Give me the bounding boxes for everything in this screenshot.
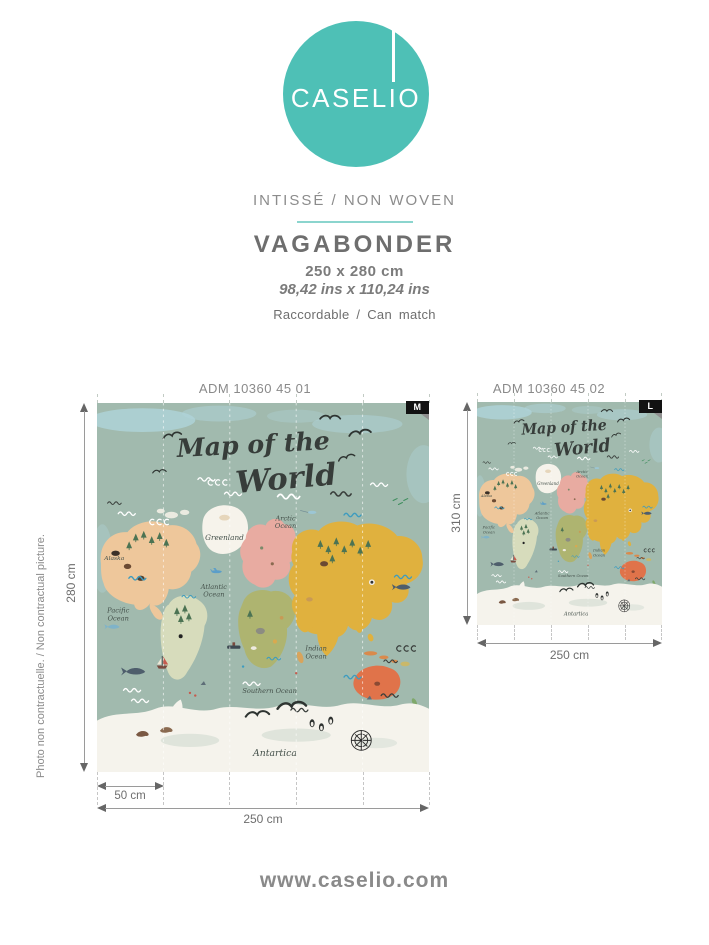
map-preview-l — [477, 402, 662, 625]
panel-guide — [429, 772, 430, 805]
logo-wordmark: CASELIO — [283, 83, 429, 114]
panel-guide — [514, 625, 515, 640]
product-sheet-page: CASELIO INTISSÉ / NON WOVEN VAGABONDER 2… — [0, 0, 709, 945]
variant-ref-01: ADM 10360 45 01 — [89, 381, 421, 396]
height-label-310: 310 cm — [449, 473, 463, 553]
height-arrow-310 — [463, 402, 472, 625]
panel-tick — [296, 394, 297, 403]
logo-mark-line — [392, 29, 395, 82]
panel-tick — [551, 393, 552, 402]
panel-guide — [551, 625, 552, 640]
panel-tick — [588, 393, 589, 402]
panel-tick — [477, 393, 478, 402]
variant-ref-02: ADM 10360 45 02 — [459, 381, 639, 396]
website-label: www.caselio.com — [0, 869, 709, 893]
badge-fold — [421, 414, 429, 420]
panel-tick — [163, 394, 164, 403]
height-arrow-280 — [80, 403, 89, 772]
product-name: VAGABONDER — [0, 231, 709, 259]
map-preview-m — [97, 403, 429, 772]
panel-guide — [625, 625, 626, 640]
match-label: Raccordable / Can match — [0, 307, 709, 322]
size-cm-label: 250 x 280 cm — [0, 263, 709, 280]
panel-guide — [588, 625, 589, 640]
panel-guide — [661, 625, 662, 640]
panel-tick — [514, 393, 515, 402]
size-inches-label: 98,42 ins x 110,24 ins — [0, 281, 709, 298]
width-arrow-250-l — [477, 639, 662, 648]
panel-tick — [429, 394, 430, 403]
panel-label-50: 50 cm — [90, 790, 170, 802]
panel-tick — [97, 394, 98, 403]
panel-tick — [229, 394, 230, 403]
width-label-250-l: 250 cm — [477, 648, 662, 662]
panel-guide — [296, 772, 297, 805]
size-badge-l: L — [639, 400, 662, 413]
material-label: INTISSÉ / NON WOVEN — [0, 192, 709, 209]
disclaimer-vertical: Photo non contractuelle. / Non contractu… — [35, 516, 47, 796]
caselio-logo: CASELIO — [283, 21, 429, 167]
panel-tick — [363, 394, 364, 403]
panel-guide — [363, 772, 364, 805]
panel-tick — [625, 393, 626, 402]
panel-guide — [477, 625, 478, 640]
panel-guide — [229, 772, 230, 805]
size-badge-m: M — [406, 401, 429, 414]
divider-line — [297, 221, 413, 223]
width-label-250: 250 cm — [97, 812, 429, 826]
badge-fold — [654, 413, 662, 419]
height-label-280: 280 cm — [64, 543, 78, 623]
